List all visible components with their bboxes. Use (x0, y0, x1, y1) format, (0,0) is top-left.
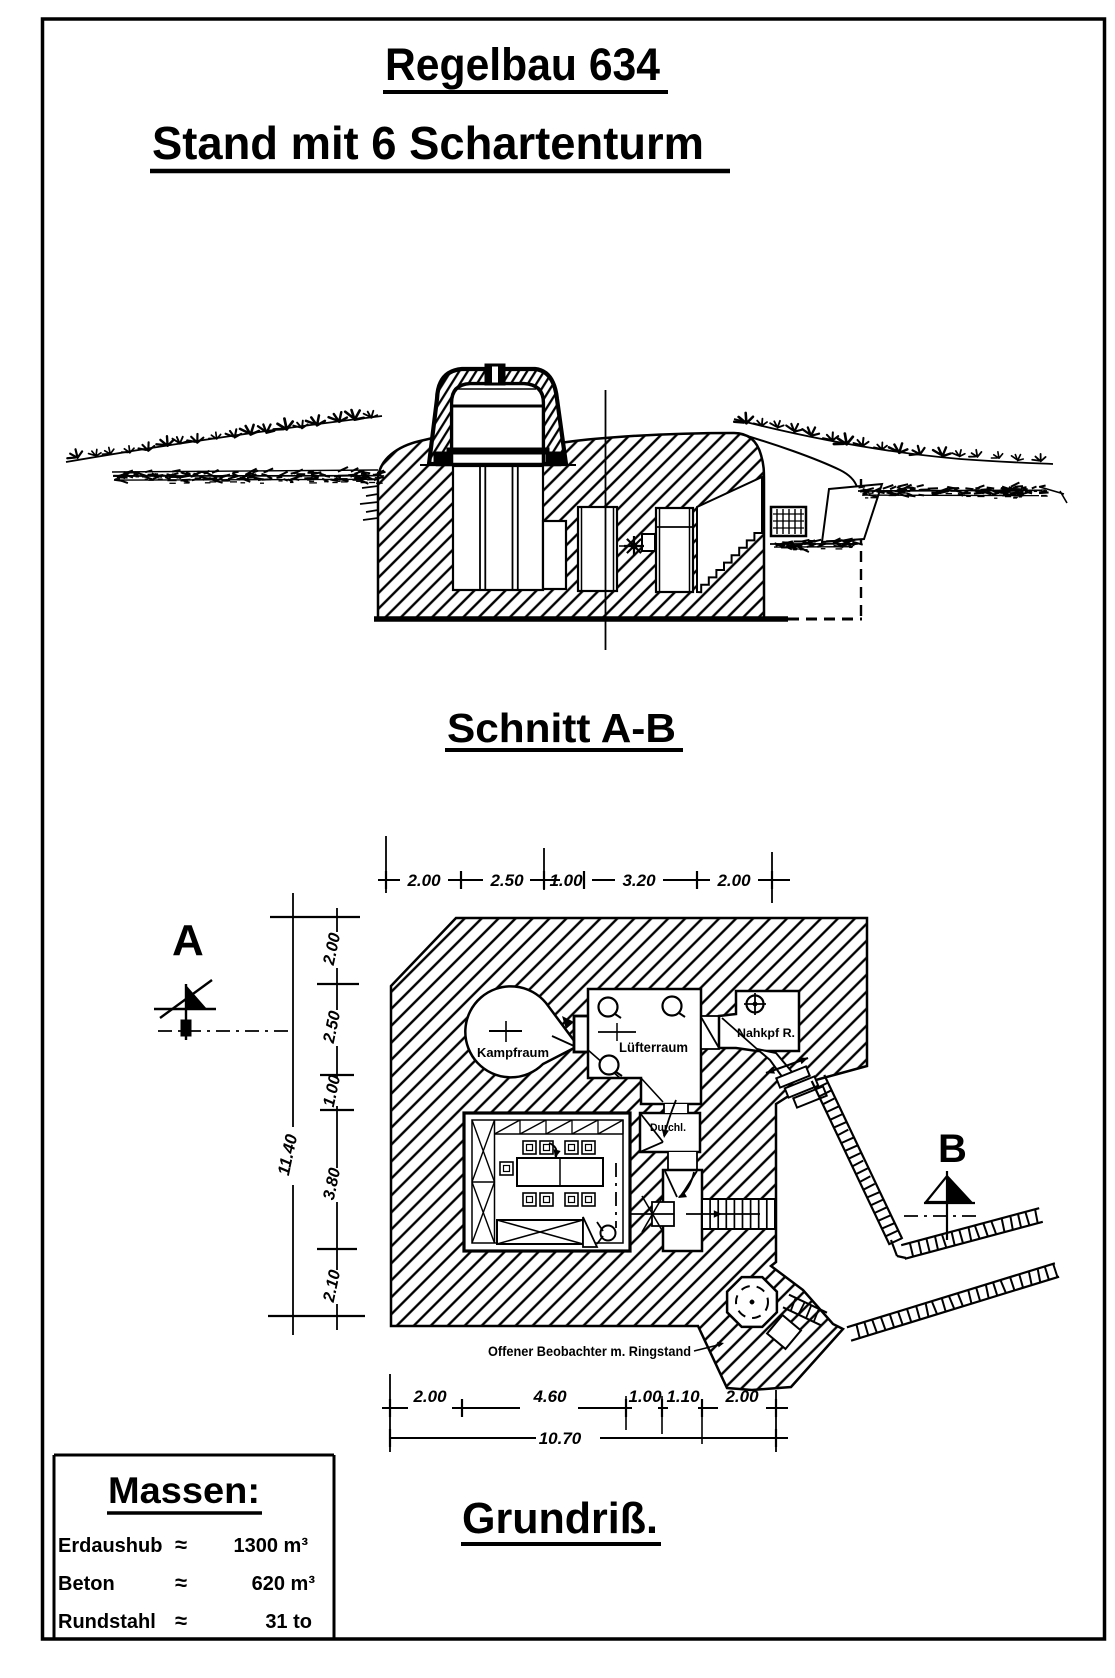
svg-text:1300 m³: 1300 m³ (234, 1535, 309, 1557)
svg-text:Erdaushub: Erdaushub (58, 1535, 162, 1557)
svg-text:4.60: 4.60 (532, 1387, 567, 1406)
svg-text:1.00: 1.00 (549, 871, 583, 890)
svg-text:620 m³: 620 m³ (252, 1573, 316, 1595)
svg-text:2.00: 2.00 (406, 871, 441, 890)
svg-text:Regelbau 634: Regelbau 634 (385, 39, 660, 90)
svg-text:1.10: 1.10 (666, 1387, 700, 1406)
svg-text:Lüfterraum: Lüfterraum (619, 1040, 688, 1055)
svg-text:Rundstahl: Rundstahl (58, 1611, 156, 1633)
svg-text:Beton: Beton (58, 1573, 115, 1595)
svg-text:2.50: 2.50 (489, 871, 524, 890)
svg-text:Schnitt A-B: Schnitt A-B (447, 705, 676, 751)
svg-text:2.00: 2.00 (724, 1387, 759, 1406)
svg-text:Grundriß.: Grundriß. (462, 1494, 658, 1543)
svg-text:10.70: 10.70 (539, 1429, 582, 1448)
svg-text:2.00: 2.00 (412, 1387, 447, 1406)
svg-text:1.00: 1.00 (628, 1387, 662, 1406)
svg-text:A: A (172, 916, 204, 965)
svg-text:Offener Beobachter m. Ringstan: Offener Beobachter m. Ringstand (488, 1343, 691, 1359)
svg-text:≈: ≈ (175, 1532, 187, 1557)
svg-text:2.00: 2.00 (716, 871, 751, 890)
svg-text:Kampfraum: Kampfraum (477, 1045, 549, 1060)
svg-text:≈: ≈ (175, 1608, 187, 1633)
svg-text:≈: ≈ (175, 1570, 187, 1595)
svg-text:Stand mit 6 Schartenturm: Stand mit 6 Schartenturm (152, 117, 704, 169)
svg-text:31 to: 31 to (265, 1611, 312, 1633)
svg-text:Massen:: Massen: (108, 1470, 260, 1511)
svg-text:B: B (938, 1127, 967, 1171)
svg-text:3.20: 3.20 (622, 871, 656, 890)
